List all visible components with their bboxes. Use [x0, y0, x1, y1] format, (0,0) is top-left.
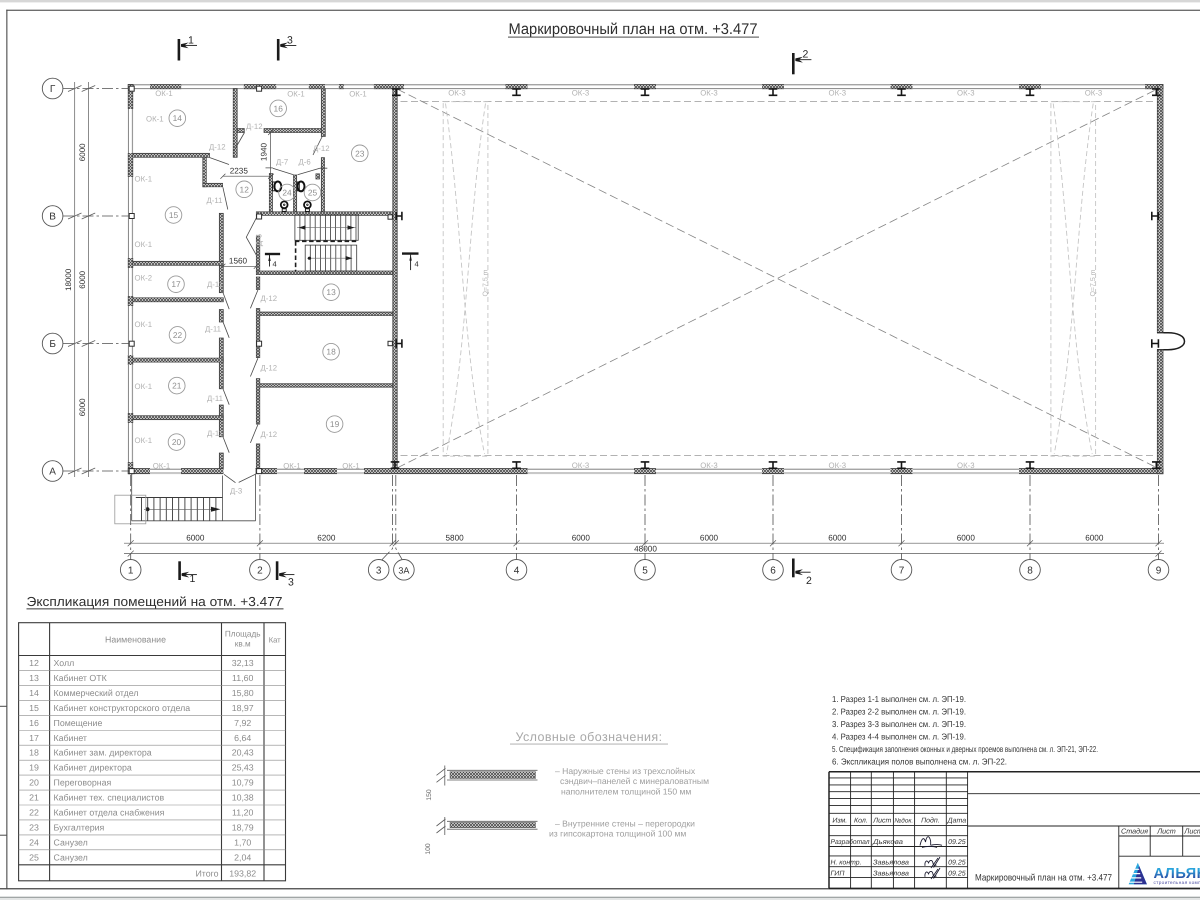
svg-text:09.25: 09.25 — [948, 870, 966, 877]
svg-text:5. Спецификация заполнения око: 5. Спецификация заполнения оконных и две… — [832, 744, 1098, 754]
svg-text:Кабинет: Кабинет — [54, 733, 87, 743]
svg-text:Д-11: Д-11 — [207, 429, 223, 438]
svg-text:6000: 6000 — [957, 534, 976, 543]
svg-text:Дата: Дата — [947, 817, 967, 824]
svg-text:ОК-1: ОК-1 — [155, 89, 173, 98]
svg-text:– Наружные стены из трехслойны: – Наружные стены из трехслойных — [555, 766, 696, 776]
svg-text:6000: 6000 — [572, 534, 591, 543]
svg-text:21: 21 — [29, 793, 39, 803]
svg-text:6,64: 6,64 — [234, 733, 251, 743]
svg-text:ОК-3: ОК-3 — [448, 88, 466, 97]
svg-text:12: 12 — [29, 658, 39, 668]
svg-text:Н. контр.: Н. контр. — [831, 859, 862, 866]
svg-text:ОК-3: ОК-3 — [957, 461, 975, 470]
svg-text:из гипсокартона толщиной 100 м: из гипсокартона толщиной 100 мм — [549, 829, 686, 839]
svg-text:Площадь: Площадь — [225, 630, 261, 639]
svg-text:2,04: 2,04 — [234, 852, 251, 862]
svg-text:18,79: 18,79 — [232, 823, 254, 833]
svg-text:193,82: 193,82 — [229, 869, 256, 879]
svg-text:Завьялова: Завьялова — [873, 859, 909, 866]
svg-text:2. Разрез 2-2 выполнен см. л.: 2. Разрез 2-2 выполнен см. л. ЭП-19. — [832, 706, 966, 716]
svg-text:7: 7 — [899, 565, 905, 576]
svg-text:Кабинет отдела снабжения: Кабинет отдела снабжения — [54, 808, 165, 818]
svg-text:4: 4 — [514, 565, 520, 576]
svg-text:18,97: 18,97 — [232, 703, 254, 713]
svg-text:3: 3 — [288, 577, 294, 589]
svg-text:25: 25 — [29, 852, 39, 862]
svg-text:Санузел: Санузел — [54, 837, 88, 847]
svg-text:Кабинет зам. директора: Кабинет зам. директора — [54, 748, 152, 758]
svg-text:09.25: 09.25 — [948, 859, 966, 866]
svg-text:Кабинет директора: Кабинет директора — [54, 763, 132, 773]
svg-text:Итого: Итого — [195, 869, 218, 879]
svg-text:ОК-3: ОК-3 — [572, 461, 590, 470]
svg-text:ГИП: ГИП — [831, 870, 846, 877]
svg-text:2: 2 — [257, 565, 263, 576]
svg-text:6200: 6200 — [317, 534, 336, 543]
svg-text:13: 13 — [29, 673, 39, 683]
svg-text:11,60: 11,60 — [232, 673, 253, 683]
svg-text:ОК-1: ОК-1 — [135, 320, 153, 329]
svg-text:ОК-1: ОК-1 — [146, 115, 164, 124]
svg-text:ОК-1: ОК-1 — [342, 461, 360, 470]
svg-text:Маркировочный план на отм. +3.: Маркировочный план на отм. +3.477 — [509, 21, 758, 38]
svg-text:А: А — [49, 467, 56, 478]
svg-text:12: 12 — [240, 184, 250, 194]
svg-text:Q=7.5 m: Q=7.5 m — [483, 269, 490, 296]
svg-text:ОК-1: ОК-1 — [135, 382, 153, 391]
svg-text:Изм.: Изм. — [832, 817, 847, 824]
svg-text:ОК-3: ОК-3 — [829, 461, 847, 470]
svg-text:4. Разрез 4-4 выполнен см. л.: 4. Разрез 4-4 выполнен см. л. ЭП-19. — [832, 731, 966, 741]
svg-text:Д-6: Д-6 — [255, 234, 264, 246]
svg-text:14: 14 — [29, 688, 39, 698]
svg-text:Д-12: Д-12 — [261, 294, 278, 303]
svg-text:ОК-1: ОК-1 — [287, 90, 305, 99]
svg-text:№док.: №док. — [894, 817, 913, 824]
svg-text:Помещение: Помещение — [54, 718, 103, 728]
svg-text:Д-12: Д-12 — [261, 430, 278, 439]
svg-text:строительная компания: строительная компания — [1154, 880, 1200, 885]
svg-text:Д-12: Д-12 — [261, 363, 278, 372]
svg-text:20: 20 — [172, 437, 182, 447]
svg-text:Санузел: Санузел — [54, 852, 88, 862]
svg-text:16: 16 — [29, 718, 39, 728]
svg-text:Д-12: Д-12 — [209, 143, 226, 152]
svg-text:Q=7.5 m: Q=7.5 m — [1090, 269, 1097, 296]
svg-text:1. Разрез 1-1 выполнен см. л.: 1. Разрез 1-1 выполнен см. л. ЭП-19. — [832, 694, 966, 704]
svg-text:Дьякова: Дьякова — [872, 839, 903, 846]
svg-text:Кабинет ОТК: Кабинет ОТК — [54, 673, 108, 683]
svg-text:5: 5 — [642, 565, 648, 576]
svg-text:Д-6: Д-6 — [299, 158, 311, 167]
svg-text:Кабинет конструкторского отдел: Кабинет конструкторского отдела — [54, 703, 191, 713]
svg-text:7,92: 7,92 — [234, 718, 251, 728]
svg-text:ОК-3: ОК-3 — [700, 461, 718, 470]
svg-text:25: 25 — [308, 188, 318, 198]
svg-text:1940: 1940 — [260, 142, 269, 161]
svg-text:Б: Б — [49, 339, 56, 350]
svg-text:Холл: Холл — [54, 658, 75, 668]
svg-text:Переговорная: Переговорная — [54, 778, 112, 788]
svg-text:32,13: 32,13 — [232, 658, 254, 668]
svg-text:15: 15 — [29, 703, 39, 713]
svg-text:Завьялова: Завьялова — [873, 870, 909, 877]
svg-text:Маркировочный план на отм. +3.: Маркировочный план на отм. +3.477 — [975, 873, 1112, 883]
svg-text:6000: 6000 — [700, 534, 719, 543]
svg-text:3: 3 — [376, 565, 382, 576]
svg-text:20: 20 — [29, 778, 39, 788]
svg-text:ОК-1: ОК-1 — [135, 175, 153, 184]
svg-text:3: 3 — [287, 35, 293, 47]
svg-text:6000: 6000 — [1085, 534, 1104, 543]
svg-text:ОК-1: ОК-1 — [135, 436, 153, 445]
svg-text:6000: 6000 — [78, 270, 87, 288]
svg-text:ОК-3: ОК-3 — [829, 88, 847, 97]
svg-text:22: 22 — [29, 808, 39, 818]
svg-text:ОК-3: ОК-3 — [572, 88, 590, 97]
svg-text:ОК-3: ОК-3 — [957, 88, 975, 97]
svg-text:ОК-1: ОК-1 — [135, 240, 153, 249]
svg-text:4: 4 — [273, 260, 277, 269]
svg-text:– Внутренние стены – перегород: – Внутренние стены – перегородки — [555, 818, 695, 828]
svg-text:Лист: Лист — [1156, 827, 1176, 836]
svg-text:1560: 1560 — [229, 257, 248, 266]
svg-text:16: 16 — [274, 103, 284, 113]
svg-text:ОК-3: ОК-3 — [700, 88, 718, 97]
svg-text:Д-3: Д-3 — [230, 486, 242, 495]
svg-text:48000: 48000 — [634, 544, 657, 553]
svg-text:13: 13 — [326, 287, 336, 297]
svg-text:3. Разрез 3-3 выполнен см. л.: 3. Разрез 3-3 выполнен см. л. ЭП-19. — [832, 719, 966, 729]
svg-text:19: 19 — [330, 419, 340, 429]
svg-text:5800: 5800 — [445, 534, 464, 543]
svg-text:1,70: 1,70 — [234, 837, 251, 847]
svg-text:18: 18 — [326, 347, 336, 357]
svg-text:Д-11: Д-11 — [207, 196, 223, 205]
svg-text:наполнителем толщиной 150 мм: наполнителем толщиной 150 мм — [561, 786, 691, 796]
svg-text:21: 21 — [172, 381, 182, 391]
svg-text:сэндвич–панелей с минераловатн: сэндвич–панелей с минераловатным — [560, 776, 709, 786]
svg-text:23: 23 — [29, 823, 39, 833]
svg-text:Г: Г — [50, 84, 56, 95]
svg-text:Условные обозначения:: Условные обозначения: — [516, 730, 663, 744]
svg-text:Д-7: Д-7 — [276, 158, 288, 167]
svg-text:15: 15 — [169, 210, 179, 220]
svg-text:10,79: 10,79 — [232, 778, 254, 788]
svg-text:14: 14 — [173, 113, 183, 123]
svg-text:24: 24 — [282, 188, 292, 198]
svg-text:Кабинет тех. специалистов: Кабинет тех. специалистов — [54, 793, 165, 803]
svg-text:Д-11: Д-11 — [205, 325, 221, 334]
svg-text:6. Экспликация полов выполнена: 6. Экспликация полов выполнена см. л. ЭП… — [832, 756, 1007, 766]
svg-text:Д-12: Д-12 — [246, 122, 263, 131]
svg-text:3А: 3А — [398, 565, 409, 575]
svg-text:6000: 6000 — [78, 143, 87, 161]
svg-text:100: 100 — [425, 843, 432, 855]
svg-text:Подп.: Подп. — [921, 816, 940, 824]
svg-text:кв.м: кв.м — [235, 640, 251, 649]
svg-text:17: 17 — [29, 733, 39, 743]
svg-text:Лист: Лист — [872, 817, 891, 824]
svg-text:9: 9 — [1156, 565, 1162, 576]
svg-text:18: 18 — [29, 748, 39, 758]
svg-text:Кат: Кат — [269, 636, 281, 645]
svg-text:1: 1 — [188, 35, 194, 47]
svg-text:23: 23 — [355, 148, 365, 158]
svg-text:Бухгалтерия: Бухгалтерия — [54, 823, 105, 833]
svg-text:18000: 18000 — [64, 268, 73, 291]
svg-text:Листов: Листов — [1183, 827, 1200, 836]
svg-text:6000: 6000 — [186, 534, 205, 543]
svg-text:Разработал: Разработал — [831, 838, 870, 846]
svg-text:17: 17 — [171, 279, 181, 289]
svg-text:Стадия: Стадия — [1121, 827, 1148, 836]
svg-text:Д-11: Д-11 — [207, 280, 223, 289]
svg-text:Д-11: Д-11 — [207, 394, 223, 403]
svg-text:6000: 6000 — [78, 398, 87, 416]
svg-text:1: 1 — [128, 565, 134, 576]
svg-text:11,20: 11,20 — [232, 808, 253, 818]
svg-text:ОК-3: ОК-3 — [1085, 88, 1103, 97]
svg-text:20,43: 20,43 — [232, 748, 254, 758]
svg-text:1: 1 — [190, 573, 196, 585]
svg-text:2: 2 — [803, 49, 809, 61]
svg-text:2235: 2235 — [230, 167, 249, 176]
svg-text:2: 2 — [806, 575, 812, 587]
svg-text:Наименование: Наименование — [105, 635, 166, 645]
svg-text:09.25: 09.25 — [948, 839, 966, 846]
svg-text:6: 6 — [770, 565, 776, 576]
svg-text:Д-12: Д-12 — [313, 144, 330, 153]
svg-text:10,38: 10,38 — [232, 793, 254, 803]
svg-text:4: 4 — [415, 260, 419, 269]
svg-text:15,80: 15,80 — [232, 688, 254, 698]
svg-text:Экспликация помещений на отм.: Экспликация помещений на отм. +3.477 — [27, 594, 283, 609]
svg-text:8: 8 — [1027, 565, 1033, 576]
svg-text:ОК-2: ОК-2 — [135, 273, 153, 282]
svg-text:19: 19 — [29, 763, 39, 773]
svg-text:В: В — [49, 212, 56, 223]
svg-text:ОК-1: ОК-1 — [153, 461, 171, 470]
svg-text:Кол.: Кол. — [854, 817, 868, 824]
svg-text:24: 24 — [29, 837, 39, 847]
svg-text:Коммерческий отдел: Коммерческий отдел — [54, 688, 139, 698]
svg-text:150: 150 — [426, 789, 433, 801]
svg-text:ОК-1: ОК-1 — [283, 461, 301, 470]
svg-text:22: 22 — [173, 330, 183, 340]
svg-text:6000: 6000 — [828, 534, 847, 543]
svg-text:25,43: 25,43 — [232, 763, 254, 773]
svg-text:ОК-1: ОК-1 — [349, 90, 367, 99]
